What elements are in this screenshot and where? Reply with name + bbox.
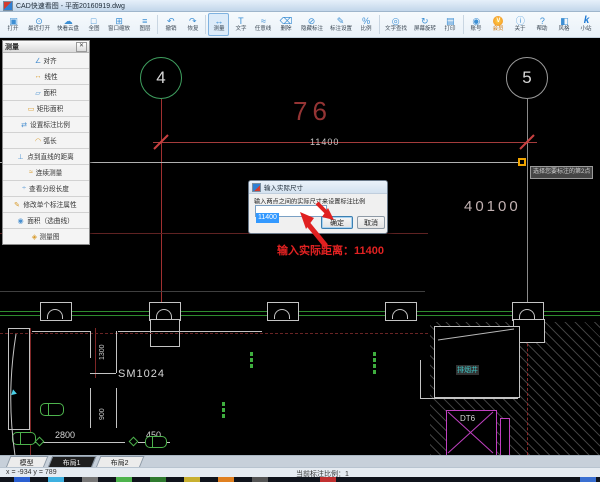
axis-line-5-upper	[527, 99, 528, 309]
dialog-icon	[252, 183, 261, 192]
hide-annotation-button[interactable]: ⊘隐藏标注	[298, 13, 326, 36]
vip-icon: V	[493, 16, 503, 26]
text-icon: T	[238, 16, 244, 26]
dim-1300: 1300	[99, 344, 106, 360]
light-fixture	[145, 436, 167, 448]
measure-panel-title: 测量	[5, 42, 19, 52]
wall-line	[90, 331, 91, 358]
shaft-label: 排烟井	[456, 365, 479, 375]
dim-line-2800	[32, 442, 125, 443]
panel-item-point-to-line[interactable]: ⊥点到直线的距离	[3, 149, 89, 165]
axis-line-4	[161, 99, 162, 311]
help-button[interactable]: ?帮助	[532, 13, 553, 36]
toolbar-separator	[205, 15, 206, 34]
site-icon: k	[584, 16, 590, 26]
wall-green-line-1	[0, 311, 600, 312]
panel-item-arc-length[interactable]: ◠弧长	[3, 133, 89, 149]
panel-item-align[interactable]: ∠对齐	[3, 53, 89, 69]
undo-button[interactable]: ↶撤销	[160, 13, 181, 36]
toolbar-separator	[157, 15, 158, 34]
layers-icon: ≡	[142, 16, 147, 26]
toolbar-separator	[463, 15, 464, 34]
dimension-line	[153, 142, 537, 143]
open-button[interactable]: ▣打开	[3, 13, 24, 36]
wall-sleeve	[40, 302, 72, 321]
wall-line	[90, 388, 91, 428]
screen-rotate-button[interactable]: ↻屏幕旋转	[411, 13, 439, 36]
faint-line	[0, 291, 425, 292]
window-zoom-button[interactable]: ⊞窗口缩放	[105, 13, 133, 36]
area-icon: ▱	[35, 89, 40, 97]
cloud-disk-icon: ☁	[64, 16, 73, 26]
shaft-room	[434, 326, 520, 398]
set-scale-icon: ⇄	[21, 121, 27, 129]
panel-item-set-scale[interactable]: ⇄设置标注比例	[3, 117, 89, 133]
wall-line	[32, 331, 90, 332]
elevator-label: DT6	[460, 414, 475, 423]
print-button[interactable]: ▤打印	[440, 13, 461, 36]
help-icon: ?	[540, 16, 545, 26]
measure-map-icon: ◈	[32, 233, 37, 241]
annotation-settings-icon: ✎	[337, 16, 345, 26]
light-fixture	[40, 403, 64, 416]
taskbar-icon[interactable]	[252, 477, 268, 482]
taskbar-icon[interactable]	[116, 477, 132, 482]
redo-button[interactable]: ↷恢复	[182, 13, 203, 36]
axis-bubble-5: 5	[506, 57, 548, 99]
screen-rotate-icon: ↻	[421, 16, 429, 26]
app-icon	[3, 1, 13, 11]
dimension-value-76: 76	[293, 96, 332, 127]
drawing-canvas[interactable]: 4 5 76 11400 选择您要标注的第2点 40100 1300 900 S…	[0, 38, 600, 455]
dialog-title: 输入实际尺寸	[264, 182, 303, 192]
redo-icon: ↷	[189, 16, 197, 26]
window-title: CAD快速看图 - 平面20160919.dwg	[16, 1, 125, 11]
cursor-coordinates: x = -934 y = 789	[6, 469, 57, 476]
about-icon: ⓘ	[516, 16, 525, 26]
arc-length-icon: ◠	[35, 137, 41, 145]
style-icon: ◧	[560, 16, 569, 26]
windows-taskbar[interactable]	[0, 477, 600, 482]
sprinkler-symbol	[35, 437, 45, 447]
wall-line	[116, 388, 117, 428]
snap-tooltip: 选择您要标注的第2点	[530, 166, 593, 179]
wall-line	[118, 331, 262, 332]
taskbar-icon[interactable]	[580, 477, 596, 482]
wall-sleeve	[385, 302, 417, 321]
site-button[interactable]: k小站	[576, 13, 597, 36]
ok-button[interactable]: 确定	[321, 216, 353, 229]
segment-length-icon: ÷	[22, 185, 26, 192]
window-zoom-icon: ⊞	[115, 16, 123, 26]
panel-item-linear[interactable]: ↔线性	[3, 69, 89, 85]
panel-item-area[interactable]: ▱面积	[3, 85, 89, 101]
continuous-measure-icon: ≈	[29, 169, 33, 176]
wall-green-line-2	[0, 315, 600, 316]
print-icon: ▤	[446, 16, 455, 26]
plan-grid-line	[95, 328, 96, 378]
panel-item-edit-annotation[interactable]: ✎修改单个标注属性	[3, 197, 89, 213]
taskbar-icon[interactable]	[184, 477, 200, 482]
layers-button[interactable]: ≡图层	[134, 13, 155, 36]
annotation-settings-button[interactable]: ✎标注设置	[327, 13, 355, 36]
about-button[interactable]: ⓘ关于	[510, 13, 531, 36]
taskbar-icon[interactable]	[150, 477, 166, 482]
edit-annotation-icon: ✎	[14, 201, 20, 209]
axis-bubble-4: 4	[140, 57, 182, 99]
account-button[interactable]: ◉账号	[466, 13, 487, 36]
measure-panel-header[interactable]: 测量 ✕	[3, 41, 89, 53]
dim-2800: 2800	[55, 430, 75, 440]
sprinkler-symbol	[129, 437, 139, 447]
rect-area-icon: ▭	[28, 105, 35, 113]
vip-button[interactable]: V会员	[488, 13, 509, 36]
area-value-40100: 40100	[464, 198, 521, 215]
taskbar-icon[interactable]	[218, 477, 234, 482]
light-fixture	[12, 432, 36, 445]
room-label-sm1024: SM1024	[118, 368, 165, 380]
taskbar-icon[interactable]	[48, 477, 64, 482]
green-label-mark	[250, 352, 253, 368]
delete-icon: ⌫	[280, 16, 293, 26]
wall-line	[116, 331, 117, 373]
undo-icon: ↶	[167, 16, 175, 26]
dialog-titlebar[interactable]: 输入实际尺寸	[249, 181, 387, 194]
panel-item-area-curve[interactable]: ◉面积（选曲线）	[3, 213, 89, 229]
recent-open-icon: ⊙	[35, 16, 43, 26]
taskbar-icon[interactable]	[14, 477, 30, 482]
panel-item-rect-area[interactable]: ▭矩形面积	[3, 101, 89, 117]
dim-900: 900	[99, 408, 106, 420]
panel-item-measure-map[interactable]: ◈测量图	[3, 229, 89, 244]
full-view-button[interactable]: □全图	[83, 13, 104, 36]
measure-button[interactable]: ↔测量	[208, 13, 229, 36]
delete-button[interactable]: ⌫删除	[275, 13, 296, 36]
green-label-mark	[373, 352, 376, 374]
taskbar-icon[interactable]	[320, 477, 336, 482]
wall-line	[420, 360, 421, 398]
green-label-mark	[222, 402, 225, 418]
taskbar-icon[interactable]	[82, 477, 98, 482]
free-line-icon: ≈	[261, 16, 266, 26]
elevator-rail	[500, 418, 510, 455]
align-dimension-icon: ∠	[35, 57, 41, 65]
full-view-icon: □	[91, 16, 96, 26]
wall-line	[420, 398, 518, 399]
account-icon: ◉	[472, 16, 480, 26]
dimension-label-11400: 11400	[310, 137, 339, 147]
hint-actual-distance: 输入实际距离：11400	[277, 242, 384, 258]
linear-dimension-icon: ↔	[35, 73, 42, 80]
measure-icon: ↔	[214, 16, 223, 26]
measure-panel: 测量 ✕ ∠对齐 ↔线性 ▱面积 ▭矩形面积 ⇄设置标注比例 ◠弧长 ⊥点到直线…	[2, 40, 90, 245]
door-recess	[8, 328, 30, 430]
style-button[interactable]: ◧风格	[554, 13, 575, 36]
panel-item-segment-length[interactable]: ÷查看分段长度	[3, 181, 89, 197]
text-button[interactable]: T文字	[230, 13, 251, 36]
snap-marker	[518, 158, 526, 166]
hide-annotation-icon: ⊘	[308, 16, 316, 26]
main-toolbar: ▣打开 ⊙最近打开 ☁快看云盘 □全图 ⊞窗口缩放 ≡图层 ↶撤销 ↷恢复 ↔测…	[0, 12, 600, 38]
close-icon[interactable]: ✕	[76, 42, 87, 52]
input-size-dialog: 输入实际尺寸 输入两点之间的实际尺寸来设置标注比例 11400 确定 取消	[248, 180, 388, 234]
toolbar-separator	[379, 15, 380, 34]
actual-size-input[interactable]: 11400	[255, 205, 327, 217]
point-to-line-icon: ⊥	[17, 153, 23, 161]
cancel-button[interactable]: 取消	[357, 216, 385, 229]
text-search-icon: ◎	[392, 16, 400, 26]
open-icon: ▣	[9, 16, 18, 26]
free-line-button[interactable]: ≈任意线	[252, 13, 274, 36]
text-search-button[interactable]: ◎文字查找	[382, 13, 410, 36]
panel-item-continuous[interactable]: ≈连续测量	[3, 165, 89, 181]
scale-icon: %	[362, 16, 370, 26]
input-selected-value: 11400	[256, 213, 279, 223]
wall-sleeve	[267, 302, 299, 321]
area-curve-icon: ◉	[17, 217, 23, 225]
plan-dashed-line	[0, 333, 428, 334]
scale-button[interactable]: %比例	[356, 13, 377, 36]
cloud-disk-button[interactable]: ☁快看云盘	[54, 13, 82, 36]
recent-open-button[interactable]: ⊙最近打开	[25, 13, 53, 36]
wall-line	[90, 373, 116, 374]
window-titlebar: CAD快速看图 - 平面20160919.dwg	[0, 0, 600, 12]
